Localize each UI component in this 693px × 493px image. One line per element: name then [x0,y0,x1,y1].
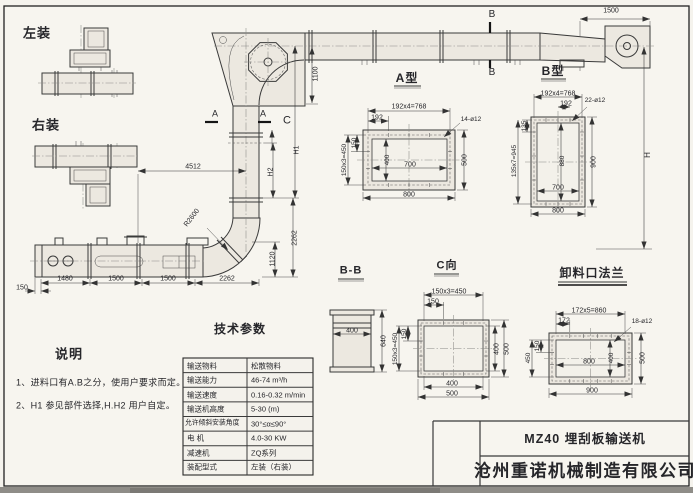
param-value: 46-74 m³/h [251,376,287,384]
scanned-drawing-sheet: 左装 右装 A A C B B 1500 1100 H1 H2 2262 112… [0,0,693,493]
dim-label: 150 [535,341,542,352]
param-label: 输送速度 [187,391,217,399]
dim-label-total-height: H [644,152,652,158]
left-mount-label: 左装 [23,27,51,40]
dim-label: 4512 [185,164,201,171]
view-marker-c: C [283,116,291,127]
dim-label: 1500 [160,276,176,283]
view-title-bb: B-B [340,266,363,277]
dim-label: 192 [371,115,383,122]
company-name: 沧州重诺机械制造有限公司 [474,463,693,480]
dim-label: 900 [586,388,598,395]
dim-label: 150 [352,138,359,149]
param-value: 0.16-0.32 m/min [251,391,305,399]
note-item: 2、H1 参见部件选择,H.H2 用户自定。 [16,402,175,411]
param-value: 左装（右装） [251,463,296,471]
param-label: 输送物料 [187,362,217,370]
dim-label: 150 [402,329,409,340]
dim-label: 900 [591,156,598,168]
dim-label: 500 [462,154,469,166]
dim-label: 400 [446,381,458,388]
view-title-c: C向 [437,261,458,272]
dim-label: 800 [552,208,564,215]
dim-label: 500 [446,391,458,398]
section-marker-b-top: B [489,10,496,20]
param-value: 松散物料 [251,362,281,370]
right-mount-label: 右装 [32,119,60,132]
param-value: 5-30 (m) [251,405,279,413]
param-label: 电 机 [187,434,204,442]
tech-params-title: 技术参数 [214,323,266,335]
dim-label: 700 [552,185,564,192]
dim-label: 1500 [603,8,619,15]
section-marker-a-right: A [260,110,266,119]
param-value: 30°≤α≤90° [251,420,286,428]
dim-label: 1500 [108,276,124,283]
dim-label: 400 [385,155,392,166]
dim-label: 1100 [313,66,320,81]
view-title-b-type: B型 [542,65,565,77]
param-value: 4.0-30 KW [251,434,286,442]
param-value: ZQ系列 [251,449,276,457]
holes-note: 22-ø12 [585,98,606,105]
dim-label: 150x3=450 [342,144,349,176]
dim-label: 135x7=945 [512,145,519,177]
dim-label: 1120 [270,251,277,266]
dim-label: 400 [609,353,616,364]
dim-label: 800 [583,359,595,366]
dim-label: 135 [522,121,529,132]
holes-note: 18-ø12 [632,319,653,326]
dim-label: 500 [504,343,511,355]
view-title-discharge: 卸料口法兰 [559,267,624,279]
dim-label: H2 [268,168,275,177]
drawing-model-title: MZ40 埋刮板输送机 [524,433,645,446]
dim-label: 400 [346,328,358,335]
param-label: 减速机 [187,449,210,457]
dim-label: 2262 [219,276,235,283]
dim-label: 192 [560,101,572,108]
dim-label: 150 [16,285,28,292]
dim-label: 800 [403,192,415,199]
param-label: 装配型式 [187,463,217,471]
dim-label: 400 [494,343,501,355]
section-marker-a-left: A [212,110,218,119]
dim-label: H1 [294,146,301,155]
scan-edge-shadow [130,488,440,493]
dim-label: 150 [427,299,439,306]
dim-label: 172x5=860 [572,308,607,315]
dim-label: 150x3=450 [393,333,400,365]
dim-label: 500 [640,352,647,364]
dim-label: 450 [526,353,533,364]
dim-label: 150x3=450 [432,289,467,296]
param-label: 输送机高度 [187,405,225,413]
dim-label: 192x4=768 [392,104,427,111]
dim-label: 640 [381,335,388,347]
param-label: 输送能力 [187,376,217,384]
dim-label: 700 [404,162,416,169]
section-marker-b-bottom: B [489,68,496,78]
dim-label: 192x4=768 [541,91,576,98]
dim-label: 172 [558,318,570,325]
dim-label: 880 [560,156,567,167]
note-item: 1、进料口有A.B之分，使用户要求而定。 [16,379,186,388]
drawing-linework [0,0,693,493]
dim-label: 2262 [292,230,299,246]
param-label: 允许倾斜安装角度 [185,420,239,427]
notes-title: 说明 [55,348,83,361]
dim-label: 1480 [57,276,73,283]
holes-note: 14-ø12 [461,117,482,124]
view-title-a-type: A型 [396,72,419,84]
